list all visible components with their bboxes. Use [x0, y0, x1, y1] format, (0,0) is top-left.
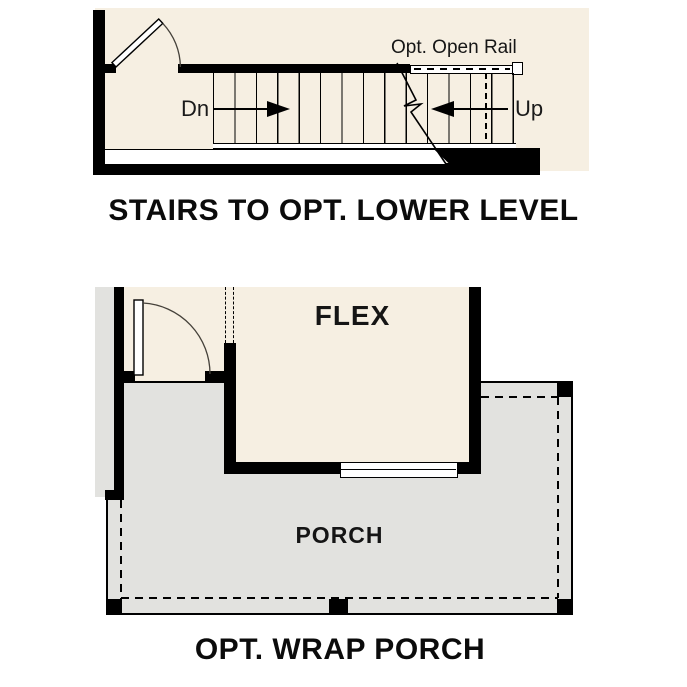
down-label: Dn [181, 96, 209, 122]
entry-jamb-left [114, 371, 135, 383]
open-rail-dashes [414, 68, 510, 70]
porch-edge-right [571, 381, 573, 615]
down-arrow-head [267, 101, 290, 117]
porch-left-wall-step [105, 490, 124, 500]
stairwell-top-wall [178, 64, 410, 73]
porch-edge-left [106, 497, 108, 615]
porch-caption: OPT. WRAP PORCH [0, 633, 680, 667]
stairs-caption: STAIRS TO OPT. LOWER LEVEL [0, 194, 687, 228]
porch-post-bottom-right [557, 599, 573, 614]
flex-room-label: FLEX [224, 300, 481, 332]
stairs-landing-strip [105, 149, 446, 164]
entry-alcove-floor [124, 287, 224, 383]
flex-window-mullion [341, 469, 456, 470]
up-label: Up [515, 96, 543, 122]
open-rail-label: Opt. Open Rail [391, 37, 517, 59]
up-arrow-head [431, 101, 454, 117]
porch-post-bottom-left [106, 599, 122, 614]
stair-stringer [213, 143, 516, 149]
porch-left-wall [114, 287, 124, 490]
flex-left-wall [224, 343, 236, 474]
up-arrow-line [453, 108, 508, 110]
stairs-door-jamb [105, 64, 116, 73]
porch-post-top-right [557, 381, 573, 397]
flex-window [340, 462, 458, 478]
porch-label: PORCH [106, 522, 573, 549]
floorplan-sheet: Opt. Open Rail Dn Up STAIRS TO OPT. LOWE… [0, 0, 687, 687]
porch-dashed-left [120, 500, 122, 599]
porch-dashed-right [557, 397, 559, 598]
down-arrow-line [214, 108, 269, 110]
porch-post-bottom-center [329, 599, 348, 614]
stairs-bottom-wall [93, 163, 540, 175]
entry-threshold [135, 381, 205, 383]
porch-dashed-top-right [481, 396, 558, 398]
stairs-left-wall [93, 10, 105, 175]
